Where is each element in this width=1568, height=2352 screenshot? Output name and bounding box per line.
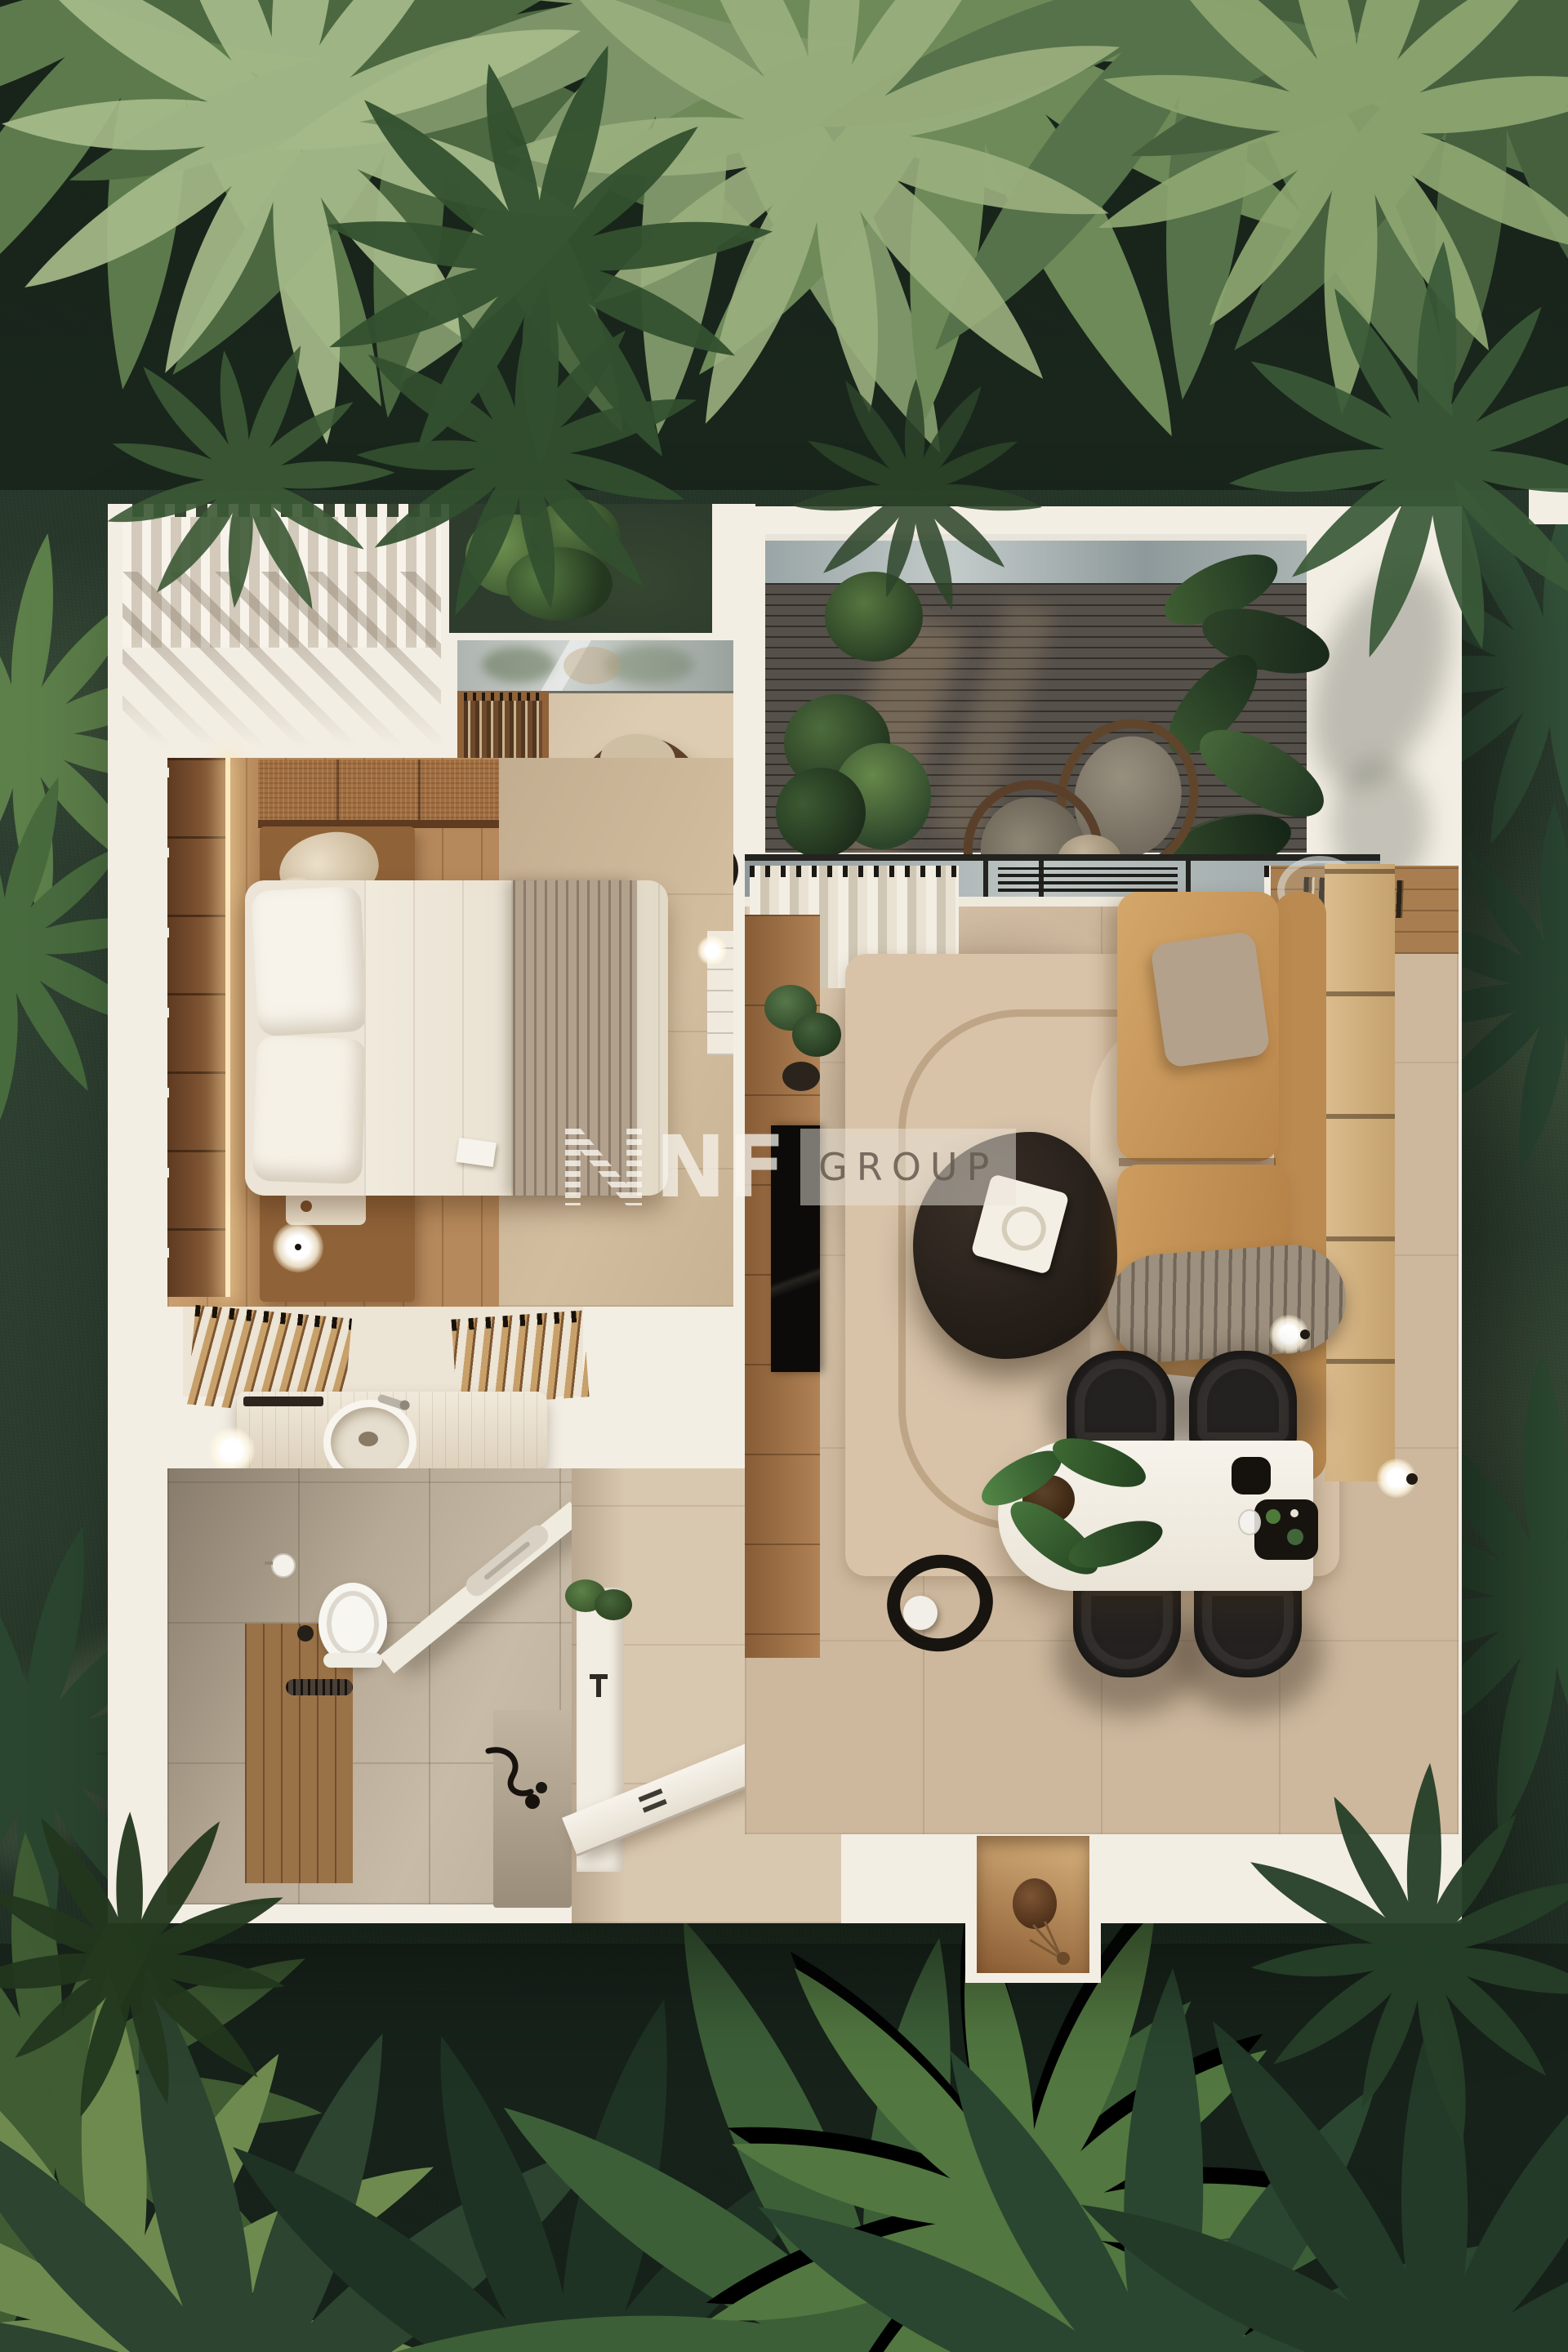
watermark-group-label: GROUP — [818, 1145, 998, 1189]
watermark: NF GROUP — [565, 1129, 1016, 1205]
watermark-group-box: GROUP — [800, 1129, 1016, 1205]
nf-logo-icon — [565, 1129, 642, 1205]
watermark-logo-text: NF — [655, 1129, 787, 1205]
floor-plan-render: NF GROUP — [0, 0, 1568, 2352]
